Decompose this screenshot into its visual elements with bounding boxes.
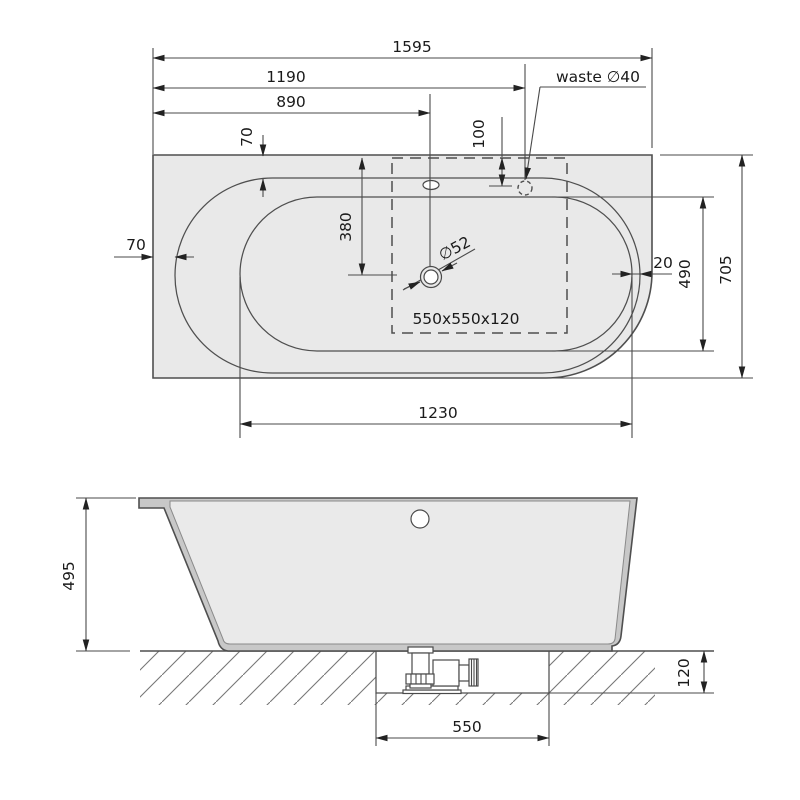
dim-label: 705 [717,255,735,285]
tailpiece-lower-flange [410,684,431,688]
overflow-hole-front [411,510,429,528]
dim-overall-width: 705 [717,155,742,378]
dim-basin-width: 490 [676,197,703,351]
dim-label: 890 [276,93,306,111]
dim-label: 100 [470,119,488,149]
side-view: 495 120 550 [60,498,714,746]
dim-label: 1230 [418,404,457,422]
dim-drain-offset: 890 [153,93,430,113]
dim-label: 380 [337,212,355,242]
dim-label: 550 [452,718,482,736]
dim-label: 120 [675,658,693,688]
dim-basin-length: 1230 [240,404,632,424]
technical-drawing: 1595 1190 890 waste ∅40 70 100 [0,0,800,800]
dim-label: 1190 [266,68,305,86]
dim-label: 495 [60,561,78,591]
tub-interior [170,501,630,644]
frame-size-label: 550x550x120 [412,310,519,328]
waste-label: waste ∅40 [556,68,640,86]
tailpiece-body [412,653,429,674]
dim-waste-offset: 1190 [153,68,525,88]
trap-body [433,660,459,686]
dim-label: 1595 [392,38,431,56]
trap-outlet-pipe [459,665,469,681]
tailpiece-flange [408,647,433,653]
dim-height: 495 [60,498,136,651]
dim-label: 490 [676,259,694,289]
dim-overall-length: 1595 [153,38,652,58]
dim-label: 70 [126,236,146,254]
overflow-hole-top [423,181,439,190]
tailpiece-nut [406,674,434,684]
dim-label: 70 [238,127,256,147]
drawing-canvas: 1595 1190 890 waste ∅40 70 100 [0,0,800,800]
dim-label: 20 [653,254,673,272]
drain-hole-inner [424,270,438,284]
top-view: 1595 1190 890 waste ∅40 70 100 [114,38,753,438]
